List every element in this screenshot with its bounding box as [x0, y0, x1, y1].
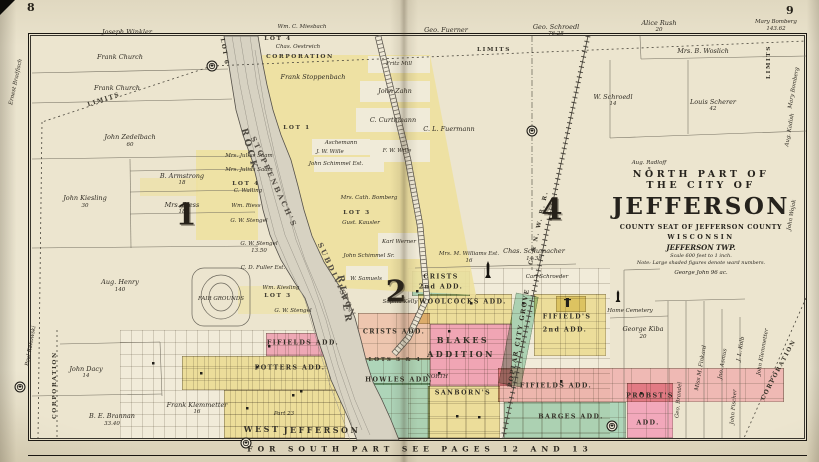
survey-marker-icon: [527, 126, 538, 137]
title-line-1: NORTH PART OF: [578, 169, 819, 180]
page-corner-shadow: [0, 0, 15, 15]
map-label: 20: [656, 27, 663, 33]
map-label: John Klemmetter: [756, 328, 770, 376]
county-line: COUNTY SEAT OF JEFFERSON COUNTY: [578, 223, 819, 231]
survey-marker-dot: [211, 64, 214, 67]
city-name: JEFFERSON: [578, 193, 819, 220]
map-label: CRISTS: [423, 274, 458, 281]
map-label: Part 23: [274, 411, 294, 417]
map-label: WOOLCOCKS ADD.: [419, 299, 507, 306]
map-label: Alice Rush: [641, 19, 676, 27]
map-label: Jno. Asmus: [717, 348, 728, 379]
survey-marker-dot: [19, 385, 22, 388]
map-label: LOT 4: [232, 181, 260, 187]
cemetery-monument-icon: [616, 290, 621, 302]
map-label: Frank Klemmetter: [167, 401, 228, 409]
map-label: Frank Stoppenbach: [281, 73, 346, 81]
map-label: LOT 4: [264, 36, 292, 42]
survey-marker-dot: [611, 424, 614, 427]
south-part-note: FOR SOUTH PART SEE PAGES 12 AND 13: [247, 445, 592, 454]
ward-number-4: 4: [542, 193, 563, 228]
map-label: FIFIELDS ADD.: [520, 383, 592, 390]
map-label: Mrs. M. Williams Est.: [439, 251, 499, 257]
map-label: F. W. Wille: [383, 148, 412, 154]
map-label: LIMITS: [766, 45, 772, 79]
parcel-george-john: George John 96 ac.: [578, 270, 819, 276]
map-label: Wm. C. Miesbach: [278, 24, 327, 30]
map-label: LOT 6: [219, 38, 230, 66]
map-label: PROBST'S: [626, 393, 674, 400]
map-label: Mrs. B. Woslich: [677, 47, 729, 55]
map-label: C. L. Fuermann: [423, 125, 474, 133]
map-label: 140: [115, 287, 126, 293]
map-label: Aug. Kadish: [784, 113, 796, 147]
map-label: 33.40: [104, 421, 120, 427]
cemetery-monument-icon: [485, 261, 491, 278]
map-label: 18: [179, 180, 186, 186]
survey-marker-dot: [531, 129, 534, 132]
map-label: Geo. Brandel: [674, 382, 683, 419]
map-label: W. Samuels: [350, 276, 382, 282]
map-label: J. W. Wille: [316, 149, 344, 155]
map-label: CRISTS ADD.: [363, 329, 425, 336]
map-label: Joseph Winkler: [102, 28, 152, 36]
map-label: Geo. Schroedl: [533, 23, 579, 31]
survey-marker-dot: [245, 441, 248, 444]
page-number-left: 8: [27, 1, 35, 14]
map-label: Paul Rakowski: [25, 325, 38, 366]
map-label: 14.38: [526, 256, 542, 262]
map-label: POPLAR CITY GROVE: [507, 288, 531, 388]
map-label: John Zedelbach: [104, 133, 155, 141]
page-number-right: 9: [786, 4, 794, 17]
map-label: B. Armstrong: [160, 172, 204, 180]
map-label: 14: [610, 101, 617, 107]
ward-number-2: 2: [386, 275, 407, 310]
map-label: 14: [83, 373, 90, 379]
map-label: J. L. Kolb: [736, 336, 746, 362]
atlas-page: Joseph WinklerFrank ChurchFrank ChurchJo…: [0, 0, 819, 462]
survey-marker-icon: [15, 382, 26, 393]
map-label: LOT 3: [343, 210, 371, 216]
map-label: Mary Bomberg: [787, 67, 800, 109]
map-label: 2nd ADD.: [419, 284, 464, 291]
map-label: CORPORATION: [266, 54, 334, 60]
map-label: John Dacy: [69, 365, 102, 373]
map-label: John Kiesling: [63, 194, 107, 202]
map-label: Aug. Radloff: [632, 160, 667, 166]
map-label: George Kiba: [622, 325, 663, 333]
map-label: 143.62: [766, 26, 785, 32]
map-label: Fritz Mill: [386, 61, 412, 67]
map-label: WEST: [244, 424, 281, 434]
map-label: Chas. Oestreich: [276, 44, 320, 50]
survey-marker-icon: [207, 61, 218, 72]
map-label: BARGES ADD.: [538, 414, 604, 421]
map-label: 16: [194, 409, 201, 415]
scale-note: Scale 600 feet to 1 inch.: [578, 253, 819, 259]
map-label: Home Cemetery: [607, 308, 652, 314]
map-label: John Fischer: [729, 389, 738, 425]
map-label: LOT 3: [264, 293, 292, 299]
map-label: Geo. Fuerner: [424, 26, 468, 34]
map-label: 16: [466, 258, 473, 264]
map-label: Aschemann: [325, 140, 357, 146]
map-label: LOTS 3 & 4: [369, 357, 422, 363]
map-label: Gust. Kausler: [342, 220, 380, 226]
map-title-block: NORTH PART OF THE CITY OF JEFFERSON COUN…: [578, 169, 819, 276]
map-label: Ernest Bradfisch: [8, 58, 24, 105]
map-label: POTTERS ADD.: [255, 365, 326, 372]
map-label: ADDITION: [427, 349, 495, 359]
map-label: G. W. Stengel: [274, 308, 311, 314]
ward-note: Note: Large shaded figures denote ward n…: [578, 260, 819, 266]
map-label: Frank Church: [94, 84, 140, 92]
map-label: 30: [82, 203, 89, 209]
map-label: C. Walling: [234, 188, 262, 194]
map-label: 2nd ADD.: [543, 327, 588, 334]
map-label: Wm. Riess: [231, 203, 260, 209]
map-label: W. Schroedl: [593, 93, 632, 101]
map-label: CORPORATION: [52, 351, 58, 419]
map-label: Miss M. Finkard: [694, 345, 708, 391]
map-label: Karl Werner: [382, 239, 416, 245]
map-label: FIFIELDS ADD.: [267, 340, 339, 347]
map-label: JEFFERSON: [284, 425, 361, 435]
map-label: 13.50: [251, 248, 267, 254]
map-label: Mary Bomberg: [755, 19, 797, 25]
map-label: G. W. Stengel: [230, 218, 267, 224]
map-label: BLAKES: [437, 335, 489, 345]
map-label: Louis Scherer: [690, 98, 736, 106]
map-label: John Schimmel Est.: [309, 161, 364, 167]
map-label: John Schimmel Sr.: [343, 253, 394, 259]
map-label: Aug. Henry: [101, 278, 139, 286]
map-label: HOWLES ADD.: [365, 377, 433, 384]
map-label: C. D. Fuller Est.: [241, 265, 286, 271]
ward-number-1: 1: [176, 198, 197, 233]
map-label: Mrs. Cath. Bomberg: [341, 195, 398, 201]
map-label: FIFIELD'S: [543, 314, 592, 321]
map-label: 76.25: [548, 31, 564, 37]
map-label: Wm. Kiesling: [263, 285, 300, 291]
map-label: FAIR GROUNDS: [198, 296, 244, 302]
map-label: Carl Schroeder: [526, 274, 569, 280]
map-label: 60: [127, 142, 134, 148]
map-label: LOT 1: [283, 125, 311, 131]
map-label: LIMITS: [87, 92, 121, 108]
township-name: JEFFERSON TWP.: [578, 243, 819, 252]
map-label: C. Curthmann: [370, 116, 416, 124]
map-label: Chas. Schumacher: [503, 247, 565, 255]
map-label: John Zahn: [378, 87, 412, 95]
state-name: WISCONSIN: [578, 233, 819, 241]
map-label: Frank Church: [97, 53, 143, 61]
map-label: LIMITS: [477, 47, 511, 53]
map-label: SANBORN'S: [435, 390, 491, 397]
map-label: 20: [640, 334, 647, 340]
map-label: G. W. Stengel: [240, 241, 277, 247]
map-label: ADD.: [636, 420, 659, 427]
map-label: 42: [710, 106, 717, 112]
survey-marker-icon: [607, 421, 618, 432]
bottom-rule: [28, 455, 807, 456]
title-line-2: THE CITY OF: [578, 180, 819, 191]
map-label: B. E. Brannan: [89, 412, 135, 420]
